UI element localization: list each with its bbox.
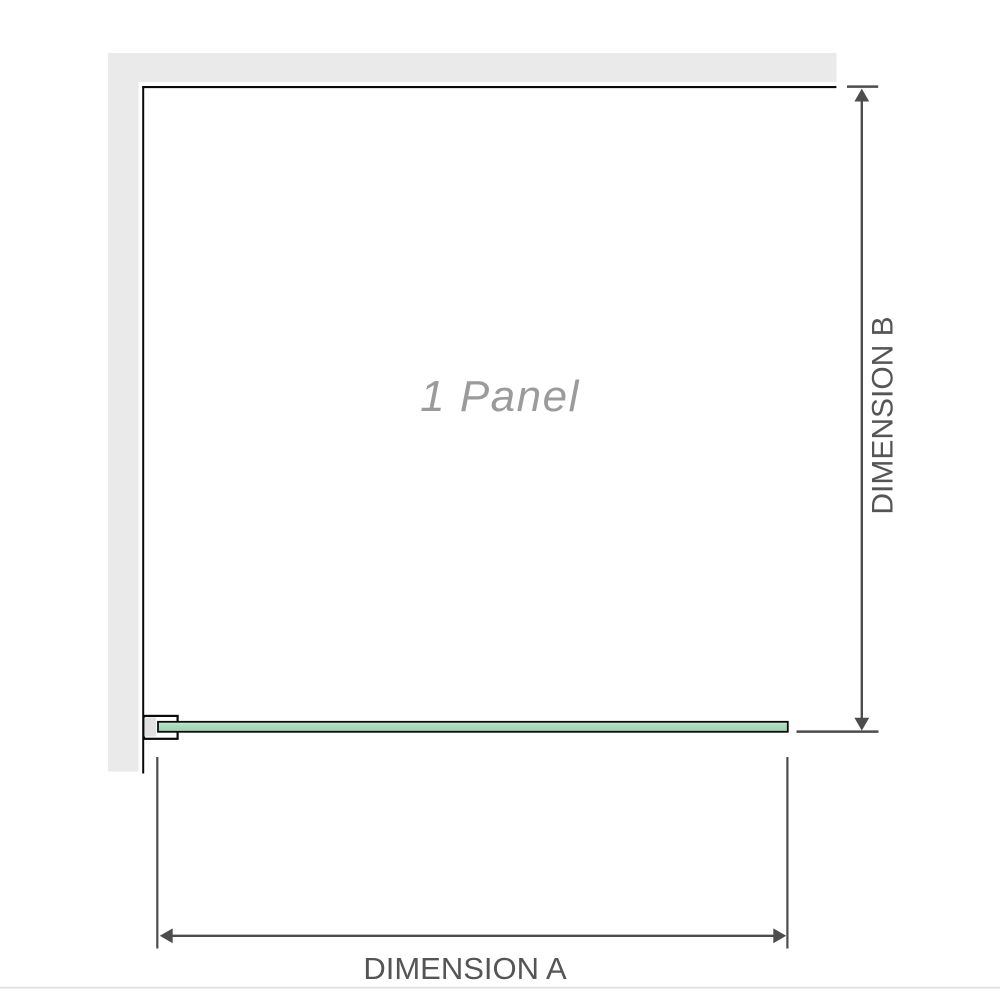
svg-text:DIMENSION A: DIMENSION A bbox=[363, 951, 567, 986]
svg-text:DIMENSION B: DIMENSION B bbox=[867, 316, 900, 514]
svg-text:1 Panel: 1 Panel bbox=[420, 372, 580, 421]
